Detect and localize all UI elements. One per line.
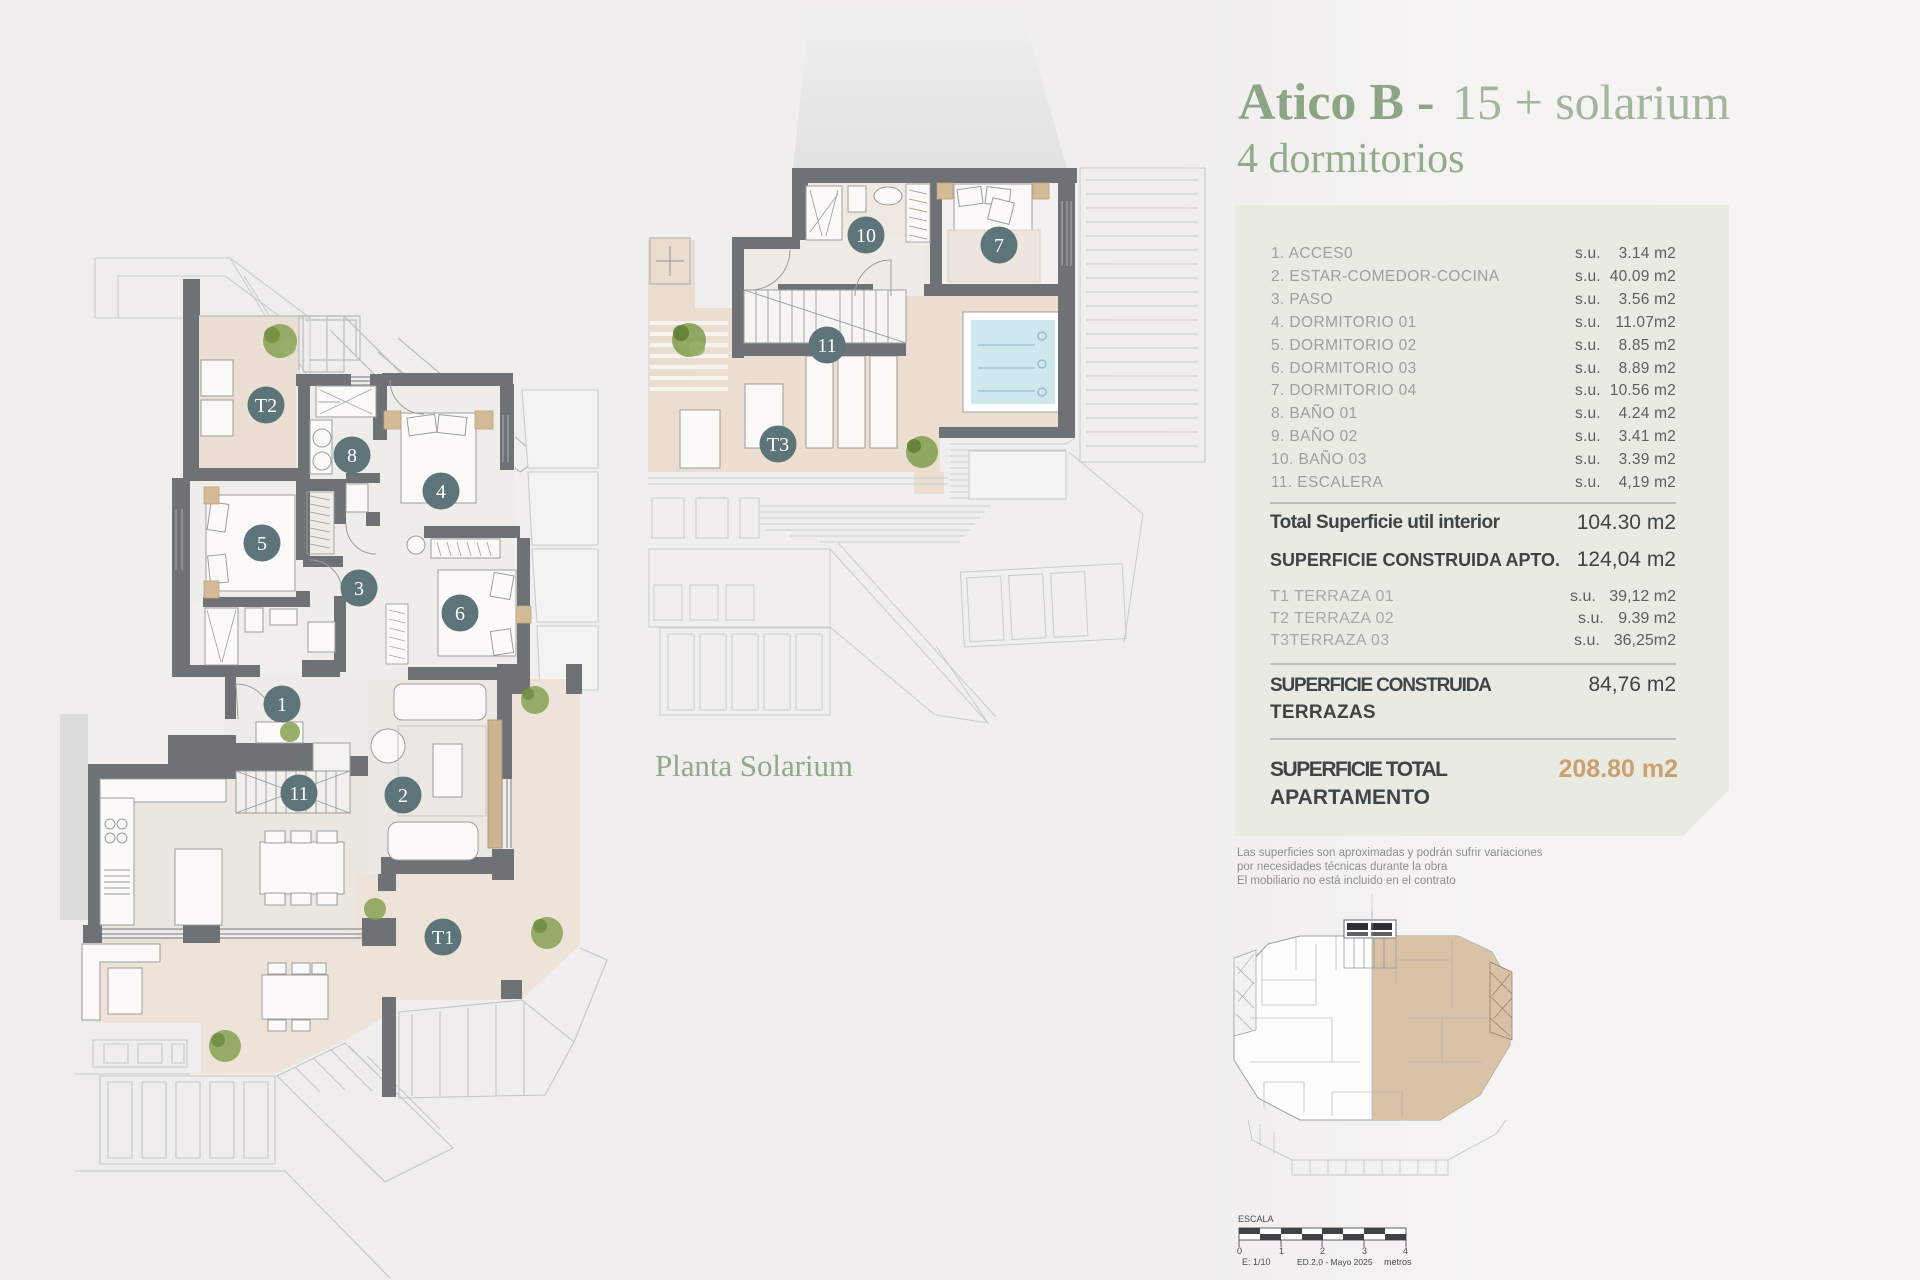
svg-text:208.80 m2: 208.80 m2: [1558, 755, 1678, 783]
svg-text:2: 2: [398, 785, 408, 807]
svg-text:T2: T2: [255, 395, 277, 417]
svg-text:2: 2: [1320, 1246, 1325, 1256]
svg-text:104.30 m2: 104.30 m2: [1577, 511, 1676, 534]
svg-text:40.09 m2: 40.09 m2: [1610, 268, 1676, 285]
svg-text:ESCALA: ESCALA: [1238, 1214, 1274, 1224]
svg-text:2. ESTAR-COMEDOR-COCINA: 2. ESTAR-COMEDOR-COCINA: [1271, 268, 1500, 285]
svg-text:4. DORMITORIO 01: 4. DORMITORIO 01: [1271, 314, 1417, 331]
svg-text:T3TERRAZA 03: T3TERRAZA 03: [1270, 632, 1390, 649]
svg-text:s.u.: s.u.: [1575, 360, 1601, 377]
svg-text:9.39 m2: 9.39 m2: [1618, 610, 1676, 627]
svg-text:T1: T1: [432, 927, 454, 949]
svg-text:Las superficies son aproximada: Las superficies son aproximadas y podrán…: [1237, 847, 1543, 859]
svg-text:1: 1: [1279, 1246, 1284, 1256]
svg-text:84,76 m2: 84,76 m2: [1588, 673, 1676, 696]
svg-text:3.56 m2: 3.56 m2: [1619, 291, 1676, 308]
svg-text:SUPERFICIE CONSTRUIDA APTO.: SUPERFICIE CONSTRUIDA APTO.: [1270, 550, 1560, 570]
svg-text:SUPERFICIE TOTAL: SUPERFICIE TOTAL: [1270, 758, 1448, 781]
svg-text:s.u.: s.u.: [1575, 428, 1601, 445]
svg-text:Planta Solarium: Planta Solarium: [655, 748, 853, 783]
svg-text:39,12 m2: 39,12 m2: [1609, 588, 1676, 605]
svg-text:s.u.: s.u.: [1578, 610, 1604, 627]
svg-text:7. DORMITORIO 04: 7. DORMITORIO 04: [1271, 382, 1417, 399]
svg-text:3.41 m2: 3.41 m2: [1619, 428, 1676, 445]
svg-text:metros: metros: [1384, 1257, 1412, 1267]
svg-text:T2 TERRAZA 02: T2 TERRAZA 02: [1270, 610, 1394, 627]
svg-text:8. BAÑO 01: 8. BAÑO 01: [1271, 405, 1358, 422]
svg-text:T3: T3: [767, 434, 789, 456]
svg-text:4 dormitorios: 4 dormitorios: [1237, 136, 1465, 182]
svg-text:por necesidades técnicas duran: por necesidades técnicas durante la obra: [1237, 861, 1448, 873]
svg-text:Total Superficie util interior: Total Superficie util interior: [1270, 512, 1501, 533]
svg-text:4: 4: [1403, 1246, 1408, 1256]
svg-text:8: 8: [347, 445, 357, 467]
svg-text:1. ACCES0: 1. ACCES0: [1271, 245, 1353, 262]
svg-text:15 + solarium: 15 + solarium: [1452, 74, 1730, 130]
svg-text:0: 0: [1237, 1246, 1242, 1256]
svg-text:6. DORMITORIO 03: 6. DORMITORIO 03: [1271, 360, 1417, 377]
svg-text:TERRAZAS: TERRAZAS: [1270, 702, 1376, 723]
svg-text:El mobiliario no está incluido: El mobiliario no está incluido en el con…: [1237, 875, 1456, 887]
svg-text:10.56 m2: 10.56 m2: [1610, 382, 1676, 399]
svg-text:s.u.: s.u.: [1575, 245, 1601, 262]
svg-text:1: 1: [277, 694, 287, 716]
svg-text:11.07m2: 11.07m2: [1615, 314, 1676, 331]
svg-text:10: 10: [856, 225, 876, 247]
svg-text:s.u.: s.u.: [1574, 632, 1600, 649]
svg-text:11: 11: [817, 335, 836, 357]
svg-text:s.u.: s.u.: [1575, 337, 1601, 354]
svg-text:9. BAÑO 02: 9. BAÑO 02: [1271, 428, 1358, 445]
svg-text:5: 5: [257, 533, 267, 555]
svg-text:3.14 m2: 3.14 m2: [1619, 245, 1676, 262]
svg-text:s.u.: s.u.: [1570, 588, 1596, 605]
svg-text:3: 3: [1362, 1246, 1367, 1256]
svg-text:3: 3: [354, 578, 364, 600]
svg-text:8.85 m2: 8.85 m2: [1619, 337, 1676, 354]
svg-text:APARTAMENTO: APARTAMENTO: [1270, 786, 1430, 809]
svg-text:7: 7: [994, 235, 1004, 257]
svg-text:3. PASO: 3. PASO: [1271, 291, 1333, 308]
svg-text:s.u.: s.u.: [1575, 474, 1601, 491]
svg-text:E: 1/10: E: 1/10: [1242, 1257, 1271, 1267]
svg-text:8.89 m2: 8.89 m2: [1619, 360, 1676, 377]
svg-text:36,25m2: 36,25m2: [1614, 632, 1676, 649]
svg-text:Atico B -: Atico B -: [1238, 74, 1434, 131]
svg-text:T1 TERRAZA 01: T1 TERRAZA 01: [1270, 588, 1394, 605]
svg-text:ED.2.0 - Mayo 2025: ED.2.0 - Mayo 2025: [1297, 1257, 1373, 1267]
svg-text:s.u.: s.u.: [1575, 268, 1601, 285]
svg-text:4: 4: [436, 481, 446, 503]
svg-text:3.39 m2: 3.39 m2: [1619, 451, 1676, 468]
svg-text:5. DORMITORIO 02: 5. DORMITORIO 02: [1271, 337, 1417, 354]
svg-text:s.u.: s.u.: [1575, 291, 1601, 308]
svg-text:s.u.: s.u.: [1575, 314, 1601, 331]
svg-text:11. ESCALERA: 11. ESCALERA: [1271, 474, 1383, 491]
svg-text:10. BAÑO 03: 10. BAÑO 03: [1271, 451, 1367, 468]
svg-text:SUPERFICIE CONSTRUIDA: SUPERFICIE CONSTRUIDA: [1270, 675, 1492, 696]
svg-text:6: 6: [455, 603, 465, 625]
svg-text:4.24 m2: 4.24 m2: [1619, 405, 1676, 422]
svg-text:124,04 m2: 124,04 m2: [1577, 548, 1676, 571]
svg-text:s.u.: s.u.: [1575, 451, 1601, 468]
svg-text:s.u.: s.u.: [1575, 405, 1601, 422]
svg-text:4,19 m2: 4,19 m2: [1619, 474, 1676, 491]
svg-text:11: 11: [289, 783, 308, 805]
svg-text:s.u.: s.u.: [1575, 382, 1601, 399]
